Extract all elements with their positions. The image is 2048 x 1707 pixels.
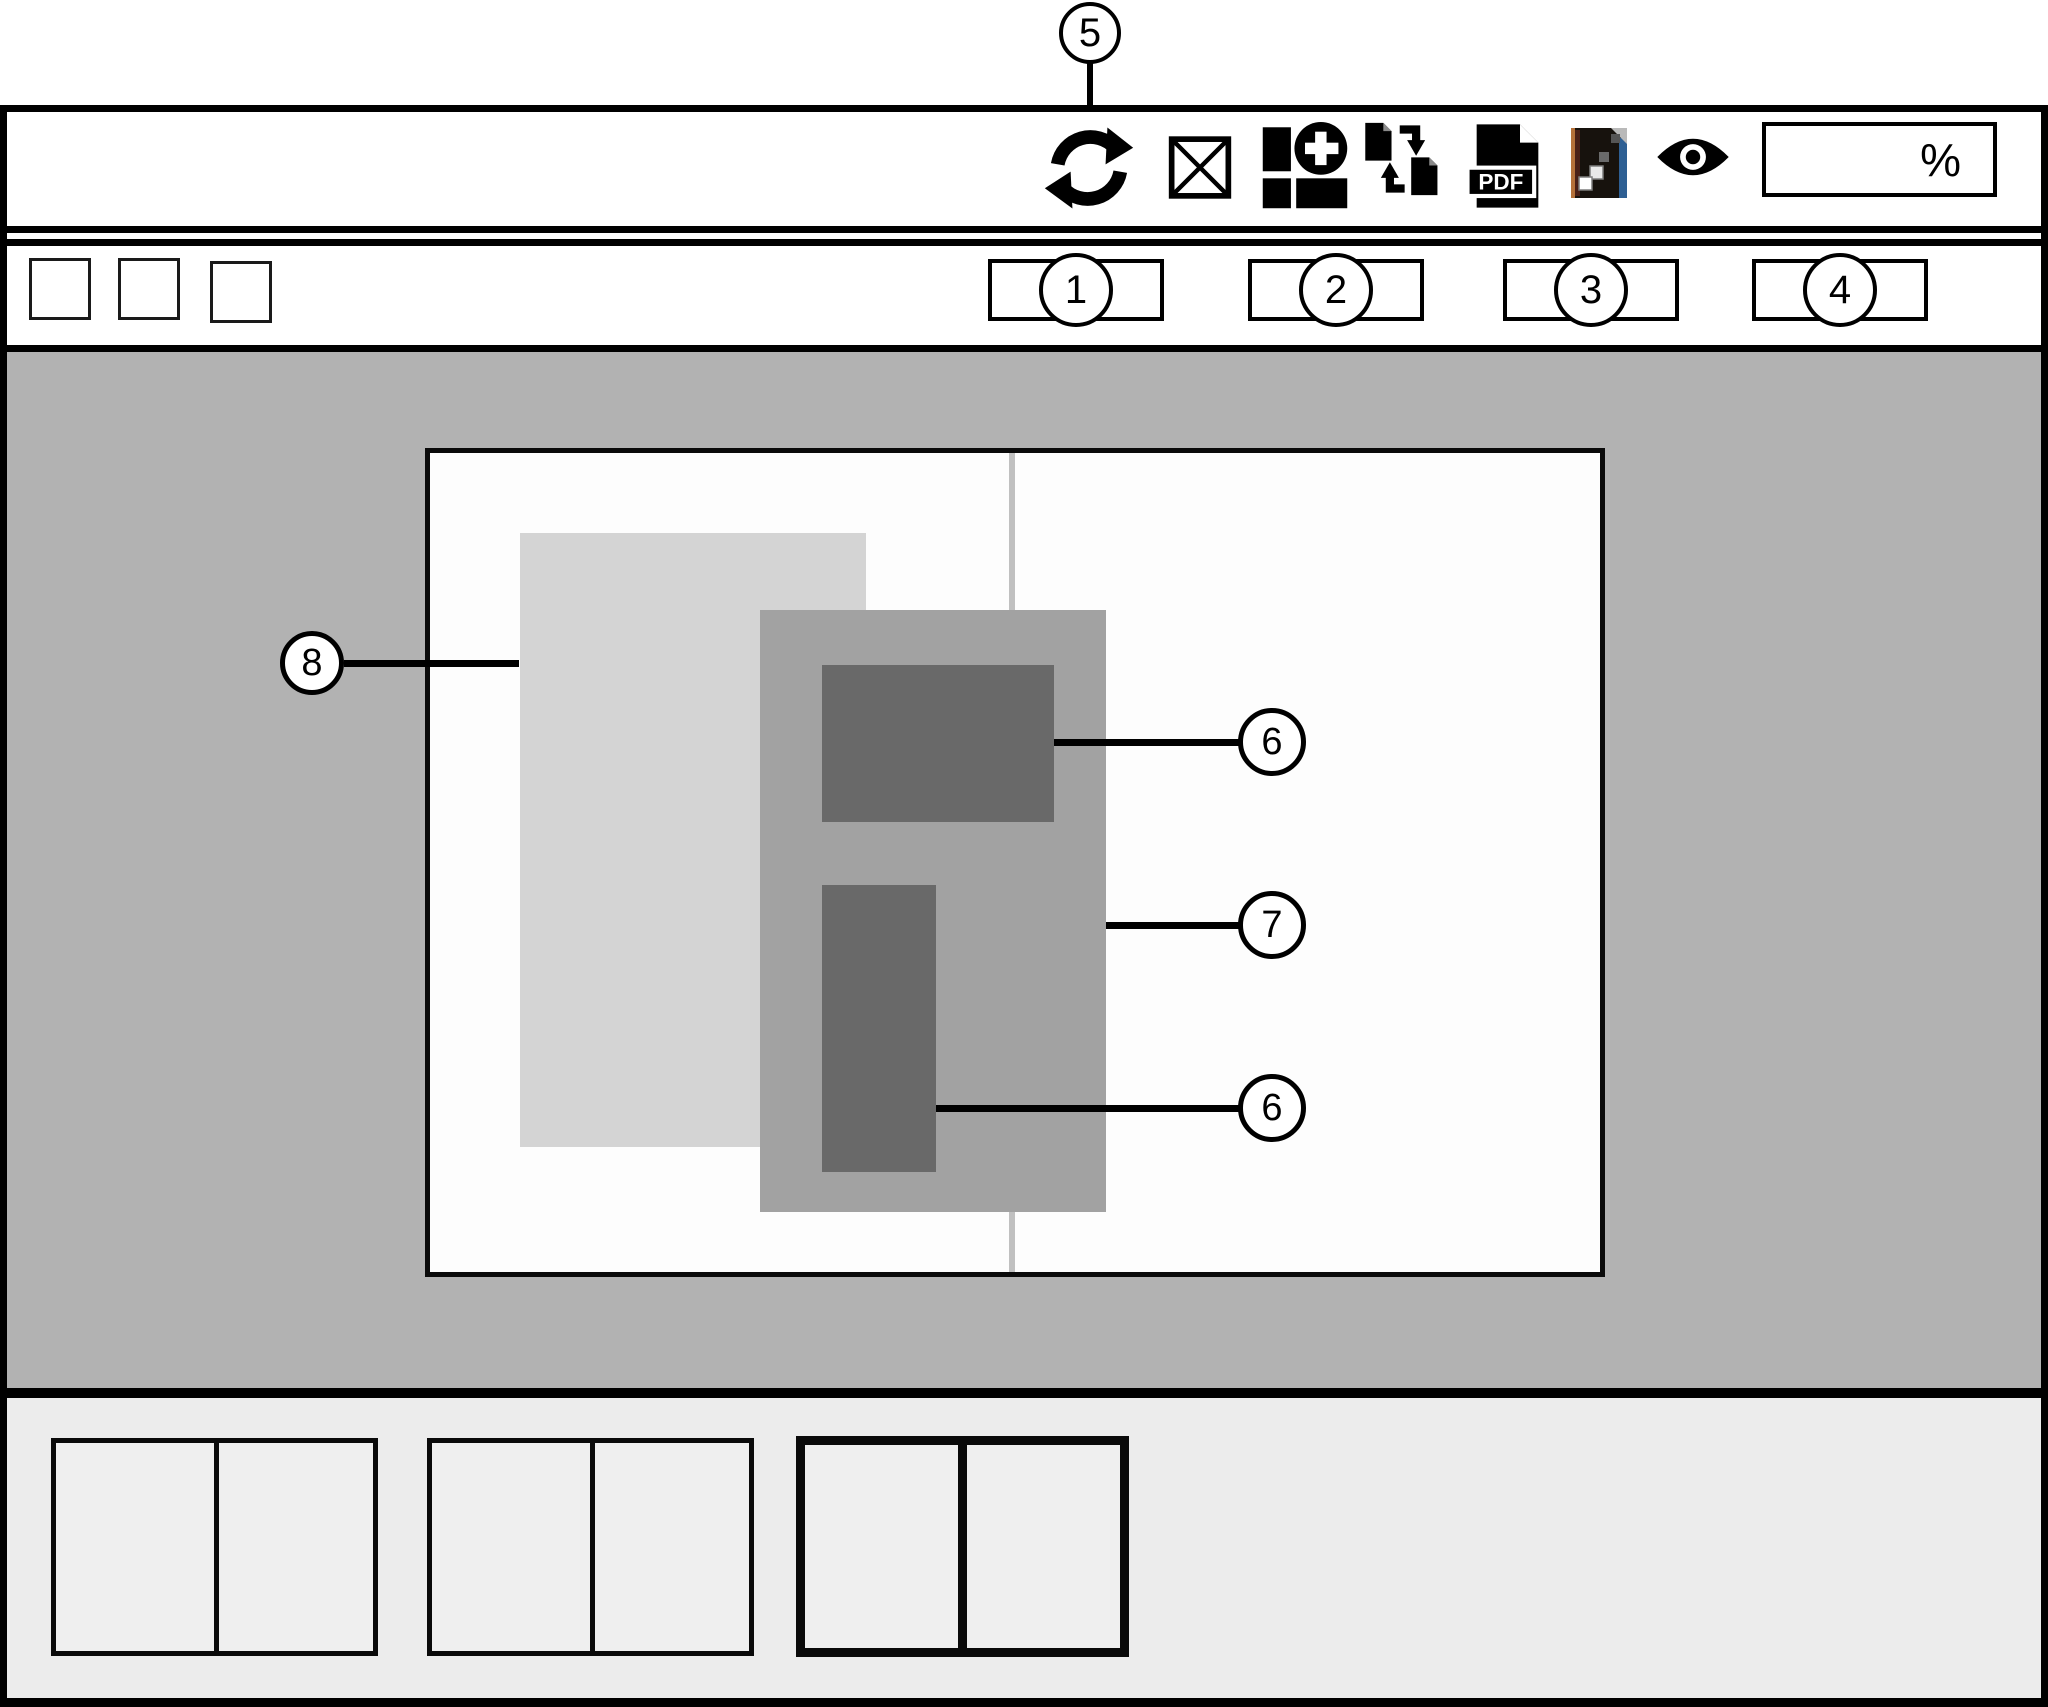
callout-8-label: 8 (301, 642, 322, 685)
preview-eye-icon[interactable] (1655, 126, 1731, 188)
image-placeholder-icon[interactable] (1168, 136, 1232, 199)
page-tool-button-2[interactable] (118, 258, 180, 320)
callout-6a: 6 (1238, 708, 1306, 776)
page-tool-button-3[interactable] (210, 261, 272, 323)
canvas-panel-divider (0, 1388, 2048, 1398)
thumbnail-1-spine (214, 1443, 219, 1651)
callout-3-label: 3 (1580, 268, 1602, 313)
callout-2: 2 (1299, 253, 1373, 327)
thumbnail-2-spine (590, 1443, 595, 1651)
callout-5-leader-line (1087, 62, 1093, 107)
content-block-bottom[interactable] (822, 885, 936, 1172)
callout-1: 1 (1039, 253, 1113, 327)
callout-6b-label: 6 (1261, 1087, 1282, 1130)
window-left-border (0, 105, 7, 1707)
callout-8-leader-line (344, 660, 519, 667)
application-window: 5 (0, 0, 2048, 1707)
spread-thumbnail-3-selected[interactable] (796, 1436, 1129, 1657)
callout-7: 7 (1238, 891, 1306, 959)
thumbnail-3-spine (958, 1445, 967, 1648)
callout-6b-leader-line (936, 1105, 1240, 1112)
callout-1-label: 1 (1065, 268, 1087, 313)
callout-7-label: 7 (1261, 904, 1282, 947)
callout-6b: 6 (1238, 1074, 1306, 1142)
callout-4-label: 4 (1829, 268, 1851, 313)
callout-2-label: 2 (1325, 268, 1347, 313)
pdf-file-icon[interactable]: PDF (1465, 123, 1540, 209)
add-blocks-icon[interactable] (1261, 122, 1349, 210)
window-right-border (2041, 105, 2048, 1707)
convert-pages-icon[interactable] (1361, 118, 1445, 200)
image-file-icon[interactable] (1568, 126, 1630, 200)
callout-3: 3 (1554, 253, 1628, 327)
callout-5: 5 (1059, 2, 1121, 64)
zoom-percent-suffix: % (1920, 133, 1961, 187)
window-bottom-bar (0, 1698, 2048, 1707)
callout-6a-label: 6 (1261, 721, 1282, 764)
top-toolbar (0, 105, 2048, 233)
callout-4: 4 (1803, 253, 1877, 327)
callout-8: 8 (280, 631, 344, 695)
zoom-percent-field[interactable]: % (1762, 122, 1997, 197)
callout-6a-leader-line (1054, 739, 1240, 746)
spread-thumbnail-2[interactable] (427, 1438, 754, 1656)
spread-thumbnail-1[interactable] (51, 1438, 378, 1656)
pdf-icon-label: PDF (1478, 169, 1523, 194)
content-block-top[interactable] (822, 665, 1054, 822)
page-tool-button-1[interactable] (29, 258, 91, 320)
callout-7-leader-line (1106, 922, 1240, 929)
callout-5-label: 5 (1079, 11, 1101, 56)
sync-refresh-icon[interactable] (1043, 121, 1135, 215)
